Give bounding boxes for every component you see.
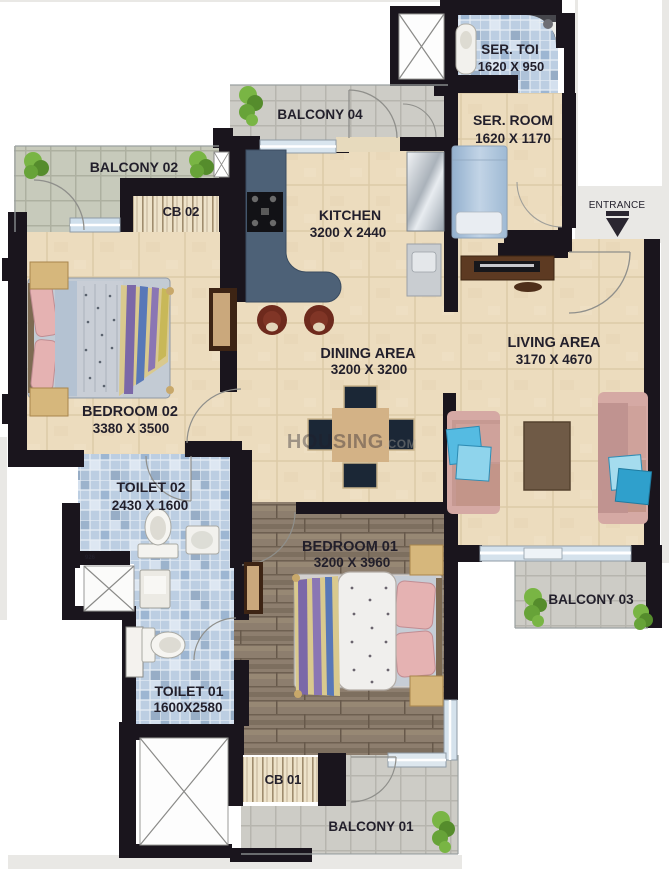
svg-text:TOILET 01: TOILET 01 <box>155 683 224 699</box>
svg-text:BALCONY 01: BALCONY 01 <box>328 819 414 834</box>
svg-text:DINING AREA: DINING AREA <box>320 346 416 362</box>
svg-text:KITCHEN: KITCHEN <box>319 207 381 223</box>
svg-text:BEDROOM 02: BEDROOM 02 <box>82 404 178 420</box>
svg-text:3200 X 3200: 3200 X 3200 <box>331 362 408 377</box>
svg-text:3380 X 3500: 3380 X 3500 <box>93 421 170 436</box>
svg-text:BALCONY 02: BALCONY 02 <box>90 159 179 175</box>
svg-text:BEDROOM 01: BEDROOM 01 <box>302 539 398 555</box>
svg-text:1620 X 1170: 1620 X 1170 <box>475 131 551 146</box>
svg-text:CB 02: CB 02 <box>163 204 200 219</box>
svg-text:2430 X 1600: 2430 X 1600 <box>112 498 189 513</box>
svg-text:BALCONY 03: BALCONY 03 <box>548 592 634 607</box>
svg-text:1600X2580: 1600X2580 <box>153 700 222 715</box>
svg-text:SER. ROOM: SER. ROOM <box>473 112 553 128</box>
svg-text:1620 X 950: 1620 X 950 <box>478 59 545 74</box>
svg-text:3170 X 4670: 3170 X 4670 <box>516 352 593 367</box>
svg-text:3200 X 2440: 3200 X 2440 <box>310 225 387 240</box>
svg-text:926: 926 <box>85 555 96 561</box>
svg-text:BALCONY 04: BALCONY 04 <box>277 107 363 122</box>
svg-text:3200 X 3960: 3200 X 3960 <box>314 555 391 570</box>
svg-text:ENTRANCE: ENTRANCE <box>589 200 646 211</box>
svg-text:TOILET 02: TOILET 02 <box>117 479 186 495</box>
svg-text:CB 01: CB 01 <box>265 772 302 787</box>
svg-text:LIVING AREA: LIVING AREA <box>508 335 601 351</box>
svg-text:SER. TOI: SER. TOI <box>481 42 539 57</box>
